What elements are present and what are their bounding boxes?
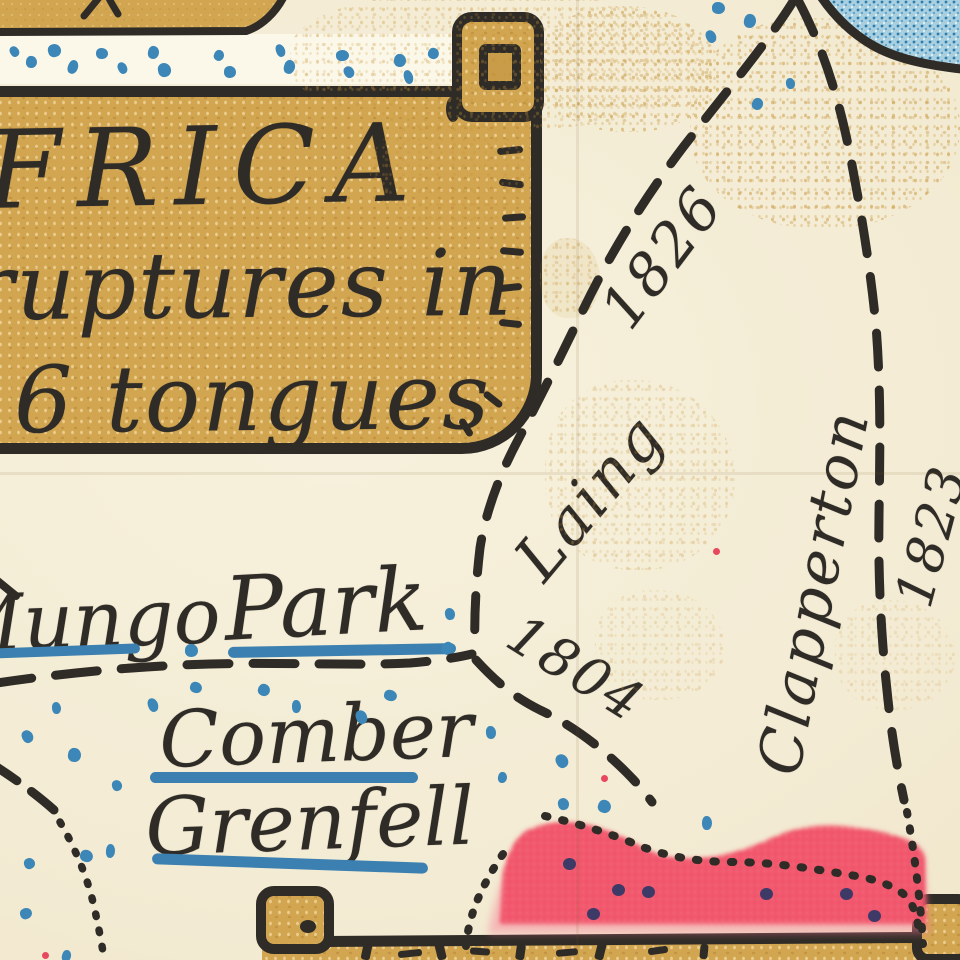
red-speck [42,952,49,959]
navy-dot [868,910,881,922]
scroll-letter-fragment [470,947,490,955]
scroll-letter-fragment [594,941,607,960]
scroll-letter-fragment [699,944,709,960]
red-speck [713,548,720,555]
pictorial-map-canvas: FRICA ruptures in 6 tongues MungoParkCom… [0,0,960,960]
navy-dot [587,908,600,920]
navy-dot [563,858,576,870]
scroll-letter-fragment [398,949,423,958]
red-speck [601,775,608,782]
navy-dot [760,888,773,900]
scroll-letter-fragment [556,948,579,957]
navy-dot [612,884,625,896]
scroll-letter-fragment [515,943,526,960]
navy-dot [642,886,655,898]
navy-dot [840,888,853,900]
scroll-letter-fragment [360,943,372,960]
overlay-dots [0,0,960,960]
scroll-letter-fragment [648,946,669,956]
scroll-letter-fragment [434,941,447,960]
